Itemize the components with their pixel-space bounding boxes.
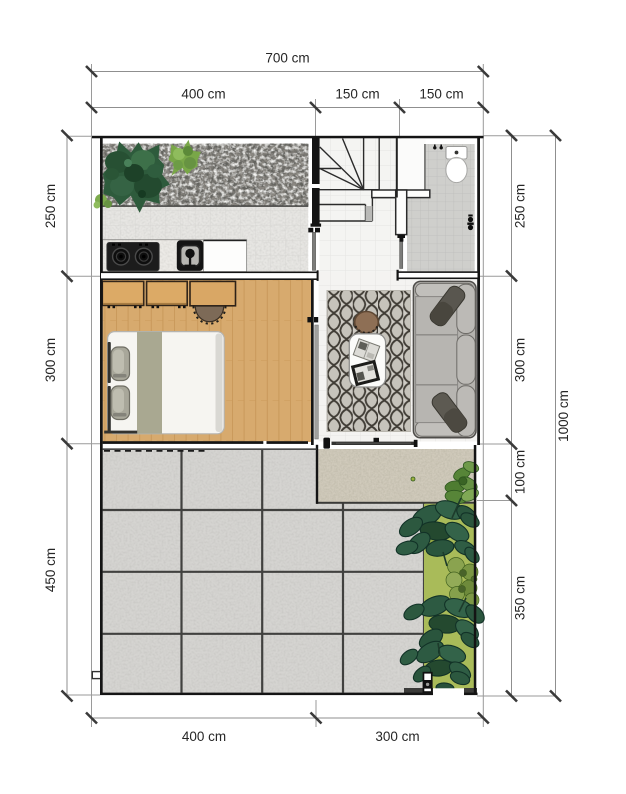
- svg-text:100 cm: 100 cm: [513, 450, 528, 494]
- svg-text:150 cm: 150 cm: [335, 87, 379, 102]
- svg-text:250 cm: 250 cm: [43, 184, 58, 228]
- svg-text:150 cm: 150 cm: [419, 87, 463, 102]
- svg-text:300 cm: 300 cm: [375, 729, 419, 744]
- svg-text:350 cm: 350 cm: [513, 576, 528, 620]
- svg-text:250 cm: 250 cm: [513, 184, 528, 228]
- svg-text:700 cm: 700 cm: [265, 51, 309, 66]
- svg-text:300 cm: 300 cm: [513, 338, 528, 382]
- svg-text:1000 cm: 1000 cm: [556, 390, 571, 442]
- svg-text:400 cm: 400 cm: [181, 87, 225, 102]
- svg-text:300 cm: 300 cm: [43, 338, 58, 382]
- svg-text:450 cm: 450 cm: [43, 548, 58, 592]
- svg-text:400 cm: 400 cm: [182, 729, 226, 744]
